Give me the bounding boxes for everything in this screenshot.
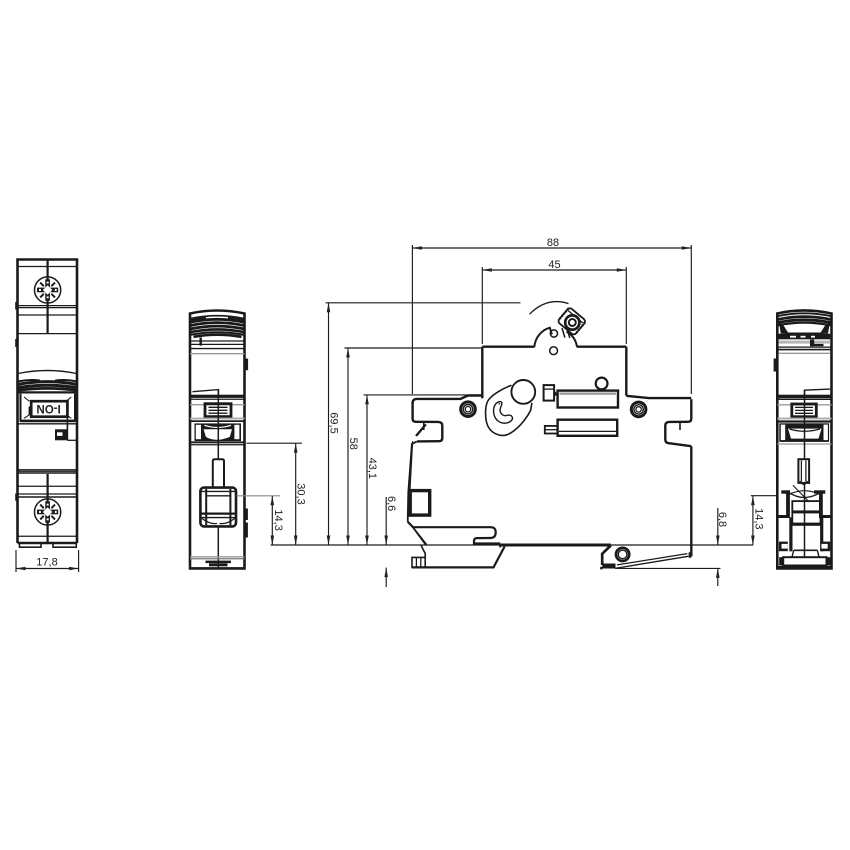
svg-text:I-ON: I-ON	[36, 402, 60, 414]
svg-text:88: 88	[547, 237, 559, 249]
svg-text:58: 58	[347, 438, 359, 450]
svg-text:6,6: 6,6	[385, 496, 397, 511]
svg-text:14,3: 14,3	[272, 509, 284, 530]
svg-text:6,8: 6,8	[716, 512, 728, 527]
svg-text:14,3: 14,3	[752, 508, 764, 529]
svg-text:69,5: 69,5	[328, 412, 340, 433]
svg-text:30,3: 30,3	[294, 483, 306, 504]
svg-text:45: 45	[548, 259, 560, 271]
svg-text:17,8: 17,8	[36, 557, 57, 569]
svg-text:43,1: 43,1	[366, 458, 378, 479]
